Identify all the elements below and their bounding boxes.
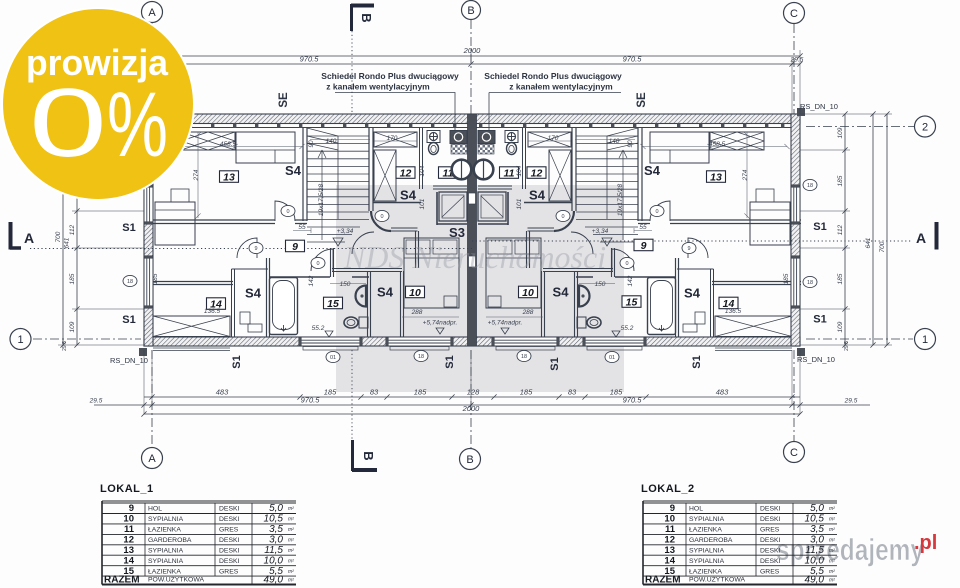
svg-text:483: 483	[716, 388, 729, 397]
svg-text:29.5: 29.5	[62, 341, 68, 351]
svg-text:970.5: 970.5	[623, 396, 643, 405]
svg-text:185: 185	[520, 388, 533, 397]
svg-text:112: 112	[837, 224, 844, 235]
svg-text:m²: m²	[829, 506, 835, 512]
svg-text:SE: SE	[636, 92, 648, 108]
svg-text:3,0: 3,0	[810, 535, 824, 546]
svg-text:m²: m²	[829, 527, 835, 533]
svg-text:Schiedel Rondo Plus dwuciągowy: Schiedel Rondo Plus dwuciągowy	[484, 71, 622, 81]
svg-text:1: 1	[922, 334, 928, 346]
svg-text:z kanałem wentylacyjnym: z kanałem wentylacyjnym	[509, 82, 613, 92]
svg-text:m²: m²	[288, 569, 294, 575]
svg-text:128: 128	[467, 388, 480, 397]
svg-text:458.5: 458.5	[709, 141, 726, 148]
svg-text:641: 641	[64, 237, 71, 248]
svg-text:S3: S3	[449, 225, 465, 240]
svg-text:55: 55	[298, 224, 306, 231]
svg-text:101: 101	[419, 198, 426, 209]
svg-text:S1: S1	[813, 314, 826, 326]
svg-text:9: 9	[687, 246, 690, 252]
svg-text:83: 83	[568, 388, 577, 397]
svg-text:DESKI: DESKI	[760, 516, 781, 523]
svg-text:m²: m²	[288, 506, 294, 512]
svg-text:0: 0	[286, 209, 289, 215]
svg-text:274: 274	[742, 169, 749, 181]
svg-text:ŁAZIENKA: ŁAZIENKA	[689, 568, 722, 575]
svg-text:274: 274	[193, 169, 200, 181]
svg-text:170: 170	[548, 135, 559, 142]
svg-text:185: 185	[837, 175, 844, 186]
svg-text:m²: m²	[288, 538, 294, 544]
svg-text:S4: S4	[400, 188, 417, 203]
svg-text:170: 170	[387, 135, 398, 142]
svg-text:112: 112	[69, 224, 76, 235]
svg-text:+5,74nadpr.: +5,74nadpr.	[423, 320, 458, 327]
svg-text:SYPIALNIA: SYPIALNIA	[689, 516, 725, 523]
svg-text:185: 185	[837, 273, 844, 284]
svg-text:DESKI: DESKI	[219, 558, 240, 565]
svg-text:m²: m²	[829, 559, 835, 565]
svg-text:0: 0	[625, 261, 628, 267]
svg-text:12: 12	[123, 535, 134, 546]
svg-text:RS_DN_10: RS_DN_10	[797, 355, 835, 364]
svg-text:0: 0	[380, 214, 383, 220]
svg-text:90: 90	[308, 140, 315, 148]
svg-text:m²: m²	[829, 569, 835, 575]
svg-text:15: 15	[327, 298, 339, 310]
svg-text:S4: S4	[529, 188, 546, 203]
svg-text:DESKI: DESKI	[760, 537, 781, 544]
svg-text:11,5: 11,5	[264, 545, 283, 556]
svg-text:RS_DN_10: RS_DN_10	[110, 356, 148, 365]
svg-text:B: B	[361, 451, 376, 460]
svg-text:S1: S1	[122, 314, 135, 326]
svg-text:18: 18	[418, 354, 424, 360]
svg-text:101: 101	[516, 198, 523, 209]
svg-text:HOL: HOL	[689, 506, 703, 513]
svg-text:LOKAL_1: LOKAL_1	[100, 483, 154, 495]
svg-text:29.5: 29.5	[790, 57, 804, 64]
svg-text:B: B	[359, 13, 374, 22]
svg-text:5,0: 5,0	[810, 503, 824, 514]
svg-text:483: 483	[216, 388, 229, 397]
svg-text:970.5: 970.5	[300, 55, 320, 64]
svg-text:15: 15	[626, 296, 638, 308]
svg-text:14: 14	[123, 556, 134, 567]
svg-text:29.5: 29.5	[89, 398, 103, 405]
svg-text:18: 18	[807, 183, 813, 189]
svg-text:1: 1	[17, 334, 23, 346]
svg-text:m²: m²	[288, 559, 294, 565]
svg-text:11: 11	[504, 167, 515, 179]
svg-text:C: C	[790, 447, 798, 459]
svg-text:13: 13	[710, 171, 722, 183]
svg-text:140: 140	[326, 138, 337, 145]
svg-text:29.5: 29.5	[844, 341, 850, 351]
svg-text:SYPIALNIA: SYPIALNIA	[689, 558, 725, 565]
svg-text:S1: S1	[549, 357, 561, 370]
svg-text:ŁAZIENKA: ŁAZIENKA	[148, 568, 181, 575]
svg-text:m²: m²	[829, 517, 835, 523]
svg-text:185: 185	[783, 273, 790, 284]
svg-text:m²: m²	[288, 548, 294, 554]
svg-text:12: 12	[664, 535, 675, 546]
svg-text:49,0: 49,0	[264, 574, 284, 585]
svg-text:185: 185	[414, 388, 427, 397]
svg-text:HOL: HOL	[148, 506, 162, 513]
svg-text:2: 2	[922, 122, 928, 134]
svg-text:POW.UŻYTKOWA: POW.UŻYTKOWA	[148, 575, 204, 584]
svg-text:83: 83	[370, 388, 379, 397]
svg-text:S4: S4	[553, 285, 570, 300]
svg-text:S4: S4	[377, 285, 394, 300]
svg-text:SYPIALNIA: SYPIALNIA	[148, 516, 184, 523]
svg-text:10: 10	[522, 287, 534, 299]
svg-text:136.5: 136.5	[204, 308, 221, 315]
svg-text:970.5: 970.5	[301, 396, 321, 405]
svg-text:NDS Nieruchomości: NDS Nieruchomości	[343, 239, 606, 275]
svg-text:288: 288	[411, 309, 423, 316]
svg-text:DESKI: DESKI	[760, 506, 781, 513]
svg-text:55: 55	[639, 224, 647, 231]
svg-text:GARDEROBA: GARDEROBA	[148, 537, 192, 544]
svg-text:m²: m²	[288, 517, 294, 523]
svg-text:136.5: 136.5	[725, 308, 742, 315]
svg-text:109: 109	[837, 127, 844, 138]
svg-text:z kanałem wentylacyjnym: z kanałem wentylacyjnym	[326, 82, 430, 92]
svg-text:+3,34: +3,34	[337, 228, 354, 235]
svg-text:10,5: 10,5	[264, 514, 284, 525]
svg-text:GRES: GRES	[760, 568, 780, 575]
svg-text:RAZEM: RAZEM	[645, 574, 681, 585]
svg-text:150: 150	[595, 281, 606, 288]
svg-text:DESKI: DESKI	[219, 547, 240, 554]
svg-text:11,5: 11,5	[805, 545, 824, 556]
svg-text:0: 0	[29, 68, 107, 177]
svg-text:SYPIALNIA: SYPIALNIA	[148, 547, 184, 554]
svg-text:970.5: 970.5	[623, 55, 643, 64]
svg-text:m²: m²	[288, 527, 294, 533]
svg-text:0: 0	[316, 261, 319, 267]
svg-text:m²: m²	[829, 538, 835, 544]
svg-text:90: 90	[627, 140, 634, 148]
svg-text:641: 641	[865, 237, 872, 248]
svg-text:49,0: 49,0	[805, 574, 825, 585]
svg-text:13: 13	[664, 545, 675, 556]
svg-text:109: 109	[69, 321, 76, 332]
svg-text:S4: S4	[285, 163, 302, 178]
svg-text:A: A	[148, 7, 156, 19]
svg-text:9: 9	[129, 503, 134, 514]
svg-text:10: 10	[123, 514, 134, 525]
svg-text:9: 9	[254, 246, 257, 252]
svg-text:S4: S4	[644, 163, 661, 178]
svg-text:10,5: 10,5	[805, 514, 825, 525]
svg-text:19x17,5/28: 19x17,5/28	[318, 184, 325, 217]
svg-text:3,0: 3,0	[269, 535, 283, 546]
svg-text:GARDEROBA: GARDEROBA	[689, 537, 733, 544]
svg-text:3,5: 3,5	[269, 524, 283, 535]
svg-text:142: 142	[308, 275, 315, 286]
svg-text:S1: S1	[231, 355, 243, 368]
svg-text:S4: S4	[245, 286, 262, 301]
svg-text:9: 9	[670, 503, 675, 514]
svg-text:.pl: .pl	[914, 532, 937, 554]
svg-text:sprzedajemy: sprzedajemy	[776, 532, 925, 567]
svg-text:Schiedel Rondo Plus dwuciągowy: Schiedel Rondo Plus dwuciągowy	[321, 71, 459, 81]
svg-text:18: 18	[807, 280, 813, 286]
svg-text:19x17,5/28: 19x17,5/28	[617, 184, 624, 217]
svg-text:13: 13	[123, 545, 134, 556]
svg-text:104: 104	[516, 165, 523, 176]
svg-text:01: 01	[330, 355, 336, 361]
svg-text:104: 104	[419, 165, 426, 176]
svg-text:GRES: GRES	[219, 568, 239, 575]
svg-text:RAZEM: RAZEM	[104, 574, 140, 585]
svg-text:GRES: GRES	[219, 527, 239, 534]
svg-text:DESKI: DESKI	[219, 516, 240, 523]
svg-text:109: 109	[837, 321, 844, 332]
svg-text:9: 9	[641, 240, 647, 252]
svg-text:185: 185	[324, 388, 337, 397]
svg-text:55.2: 55.2	[621, 325, 634, 332]
svg-text:11: 11	[665, 524, 676, 535]
svg-text:RS_DN_10: RS_DN_10	[800, 102, 838, 111]
svg-text:%: %	[107, 74, 168, 176]
svg-text:SYPIALNIA: SYPIALNIA	[689, 547, 725, 554]
svg-text:DESKI: DESKI	[760, 547, 781, 554]
svg-text:DESKI: DESKI	[219, 506, 240, 513]
svg-text:B: B	[466, 454, 473, 466]
svg-text:S1: S1	[691, 355, 703, 368]
svg-text:ŁAZIENKA: ŁAZIENKA	[689, 527, 722, 534]
svg-text:m²: m²	[829, 577, 835, 583]
svg-text:POW.UŻYTKOWA: POW.UŻYTKOWA	[689, 575, 745, 584]
svg-text:12: 12	[531, 167, 543, 179]
svg-text:150: 150	[340, 281, 351, 288]
svg-text:GRES: GRES	[760, 527, 780, 534]
svg-text:C: C	[790, 8, 798, 20]
svg-text:458.5: 458.5	[220, 141, 237, 148]
svg-text:LOKAL_2: LOKAL_2	[641, 483, 695, 495]
svg-text:13: 13	[223, 171, 235, 183]
svg-text:29.5: 29.5	[844, 398, 858, 405]
svg-text:SE: SE	[278, 92, 290, 108]
svg-text:B: B	[467, 5, 474, 17]
svg-text:142: 142	[627, 275, 634, 286]
svg-text:0: 0	[561, 214, 564, 220]
svg-text:185: 185	[69, 273, 76, 284]
svg-text:700: 700	[879, 241, 886, 252]
svg-text:2000: 2000	[463, 46, 482, 55]
svg-text:DESKI: DESKI	[219, 537, 240, 544]
svg-text:10: 10	[664, 514, 675, 525]
svg-text:12: 12	[400, 167, 412, 179]
svg-text:ŁAZIENKA: ŁAZIENKA	[148, 527, 181, 534]
svg-text:0: 0	[655, 209, 658, 215]
svg-text:55.2: 55.2	[312, 325, 325, 332]
svg-text:S1: S1	[122, 222, 135, 234]
svg-text:3,5: 3,5	[810, 524, 824, 535]
svg-text:18: 18	[127, 279, 133, 285]
svg-text:14: 14	[664, 556, 675, 567]
svg-text:185: 185	[610, 388, 623, 397]
svg-text:9: 9	[292, 241, 298, 253]
svg-text:140: 140	[609, 138, 620, 145]
svg-text:+5,74nadpr.: +5,74nadpr.	[488, 320, 523, 327]
svg-text:10: 10	[409, 287, 421, 299]
svg-text:18: 18	[521, 354, 527, 360]
svg-text:185: 185	[152, 273, 159, 284]
svg-text:A: A	[148, 453, 156, 465]
svg-text:10,0: 10,0	[805, 556, 825, 567]
svg-text:m²: m²	[829, 548, 835, 554]
svg-text:2000: 2000	[462, 404, 481, 413]
svg-text:700: 700	[55, 231, 62, 242]
svg-text:S4: S4	[684, 286, 701, 301]
svg-text:288: 288	[522, 309, 534, 316]
svg-text:SYPIALNIA: SYPIALNIA	[148, 558, 184, 565]
svg-text:A: A	[24, 230, 34, 246]
svg-text:01: 01	[609, 355, 615, 361]
svg-text:m²: m²	[288, 577, 294, 583]
svg-text:+3,34: +3,34	[592, 228, 609, 235]
svg-text:10,0: 10,0	[264, 556, 284, 567]
svg-text:S1: S1	[444, 355, 456, 368]
svg-text:A: A	[916, 230, 926, 246]
svg-text:S1: S1	[813, 221, 826, 233]
svg-text:DESKI: DESKI	[760, 558, 781, 565]
svg-text:5,0: 5,0	[269, 503, 283, 514]
svg-text:11: 11	[124, 524, 135, 535]
